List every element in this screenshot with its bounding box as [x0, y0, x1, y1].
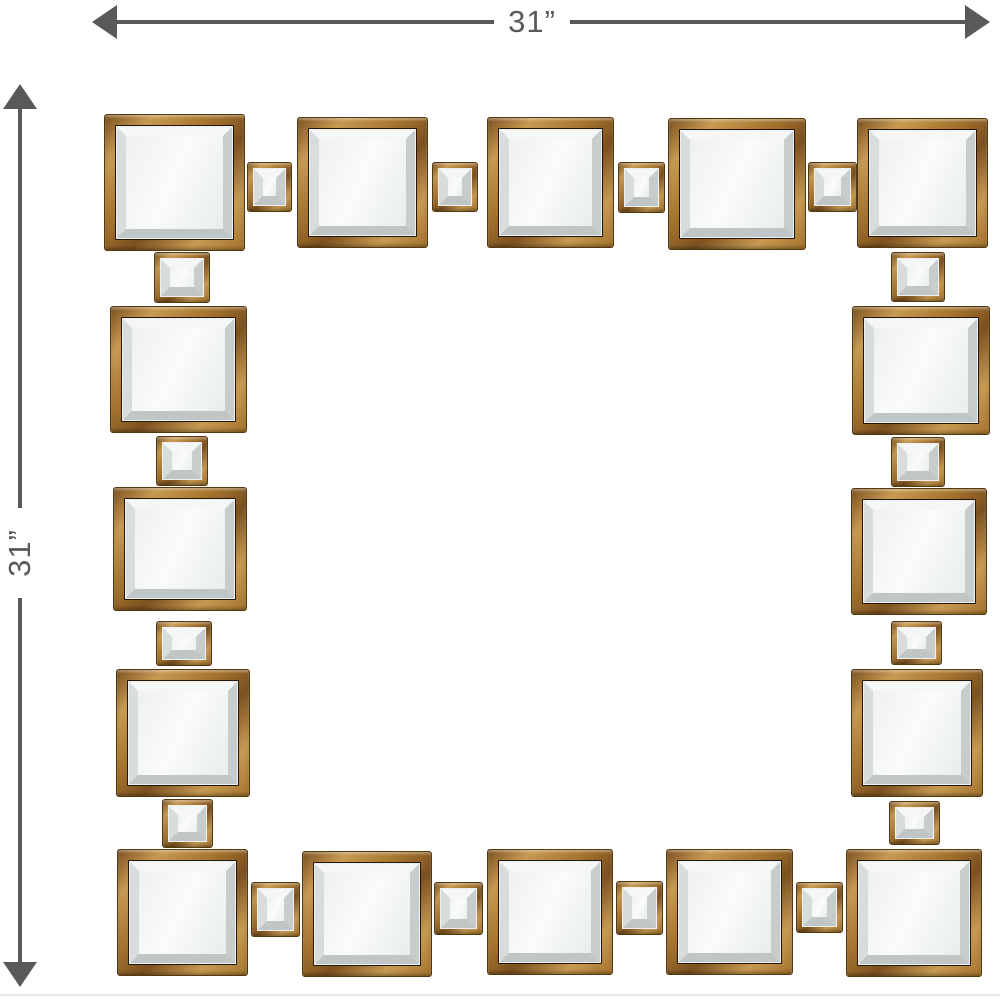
mirror-bevel [625, 169, 658, 206]
product-dimension-diagram: 31” 31” [0, 0, 1000, 1000]
mirror-bevel [123, 319, 234, 420]
mirror-bevel [117, 127, 232, 238]
mirror-frame-large [487, 117, 614, 248]
mirror-glass [874, 328, 968, 413]
mirror-frame-large [666, 849, 793, 975]
mirror-bevel [254, 169, 285, 205]
mirror-glass [873, 691, 961, 775]
mirror-bevel [169, 806, 206, 841]
mirror-product-image [0, 0, 1000, 1000]
mirror-glass [324, 873, 410, 955]
mirror-frame-small-connector [891, 621, 942, 665]
mirror-glass [509, 871, 591, 953]
mirror-frame-small-connector [891, 252, 945, 302]
mirror-bevel [898, 259, 938, 295]
mirror-bevel [163, 628, 205, 659]
mirror-frame-small-connector [247, 162, 292, 212]
mirror-frame-small-connector [434, 882, 483, 935]
mirror-bevel [129, 682, 237, 784]
mirror-glass [907, 637, 926, 649]
mirror-bevel [865, 319, 977, 422]
mirror-glass [873, 510, 965, 593]
mirror-glass [905, 817, 924, 829]
mirror-glass [263, 178, 276, 196]
mirror-frame-small-connector [432, 162, 478, 212]
mirror-frame-large [302, 851, 432, 977]
mirror-glass [132, 328, 225, 411]
mirror-frame-small-connector [618, 162, 665, 213]
mirror-bevel [500, 130, 601, 235]
mirror-frame-large [668, 118, 806, 250]
mirror-frame-small-connector [154, 252, 210, 303]
mirror-bevel [315, 864, 419, 964]
backdrop-edge-line [0, 994, 1000, 996]
mirror-glass [139, 871, 226, 954]
mirror-bevel [815, 169, 850, 205]
mirror-glass [907, 268, 929, 286]
mirror-glass [267, 898, 284, 921]
mirror-bevel [864, 501, 974, 602]
mirror-bevel [126, 500, 234, 598]
mirror-frame-large [297, 117, 428, 248]
mirror-glass [172, 452, 192, 470]
mirror-frame-large [846, 849, 982, 977]
mirror-glass [448, 178, 462, 196]
mirror-glass [688, 871, 771, 953]
mirror-frame-large [487, 849, 613, 975]
mirror-frame-small-connector [162, 799, 213, 848]
mirror-glass [319, 139, 406, 226]
mirror-frame-small-connector [156, 621, 212, 666]
mirror-bevel [163, 443, 201, 479]
mirror-bevel [258, 889, 293, 930]
mirror-glass [812, 898, 827, 917]
mirror-frame-large [104, 114, 245, 251]
mirror-glass [450, 898, 467, 919]
mirror-frame-small-connector [891, 437, 945, 487]
mirror-frame-large [852, 306, 990, 435]
mirror-bevel [898, 444, 938, 480]
mirror-glass [135, 509, 225, 589]
mirror-bevel [681, 131, 793, 237]
mirror-frame-large [117, 849, 248, 976]
mirror-frame-small-connector [156, 436, 208, 486]
mirror-glass [690, 140, 784, 228]
mirror-frame-small-connector [251, 882, 300, 937]
mirror-frame-large [113, 487, 247, 611]
mirror-bevel [679, 862, 780, 962]
mirror-bevel [803, 889, 836, 926]
mirror-bevel [623, 888, 656, 928]
mirror-bevel [439, 169, 471, 205]
mirror-frame-small-connector [889, 801, 940, 845]
mirror-frame-large [857, 118, 988, 248]
mirror-frame-small-connector [808, 162, 857, 212]
mirror-bevel [310, 130, 415, 235]
mirror-bevel [864, 682, 970, 784]
mirror-bevel [161, 259, 203, 296]
mirror-glass [126, 136, 223, 229]
mirror-glass [632, 897, 647, 919]
mirror-glass [634, 178, 649, 197]
mirror-frame-large [851, 488, 987, 615]
mirror-glass [824, 178, 841, 196]
mirror-bevel [896, 808, 933, 838]
mirror-bevel [870, 131, 975, 235]
mirror-frame-large [116, 669, 250, 797]
mirror-bevel [130, 862, 235, 963]
mirror-glass [868, 871, 960, 955]
mirror-frame-large [110, 306, 247, 433]
mirror-bevel [441, 889, 476, 928]
mirror-bevel [898, 628, 935, 658]
mirror-frame-small-connector [616, 881, 663, 935]
mirror-glass [138, 691, 228, 775]
mirror-bevel [500, 862, 600, 962]
mirror-bevel [859, 862, 969, 964]
mirror-glass [879, 140, 966, 226]
mirror-glass [170, 268, 194, 287]
mirror-glass [172, 637, 196, 650]
mirror-glass [509, 139, 592, 226]
mirror-glass [907, 453, 929, 471]
mirror-frame-large [851, 669, 983, 797]
mirror-glass [178, 815, 197, 832]
mirror-frame-small-connector [796, 882, 843, 933]
